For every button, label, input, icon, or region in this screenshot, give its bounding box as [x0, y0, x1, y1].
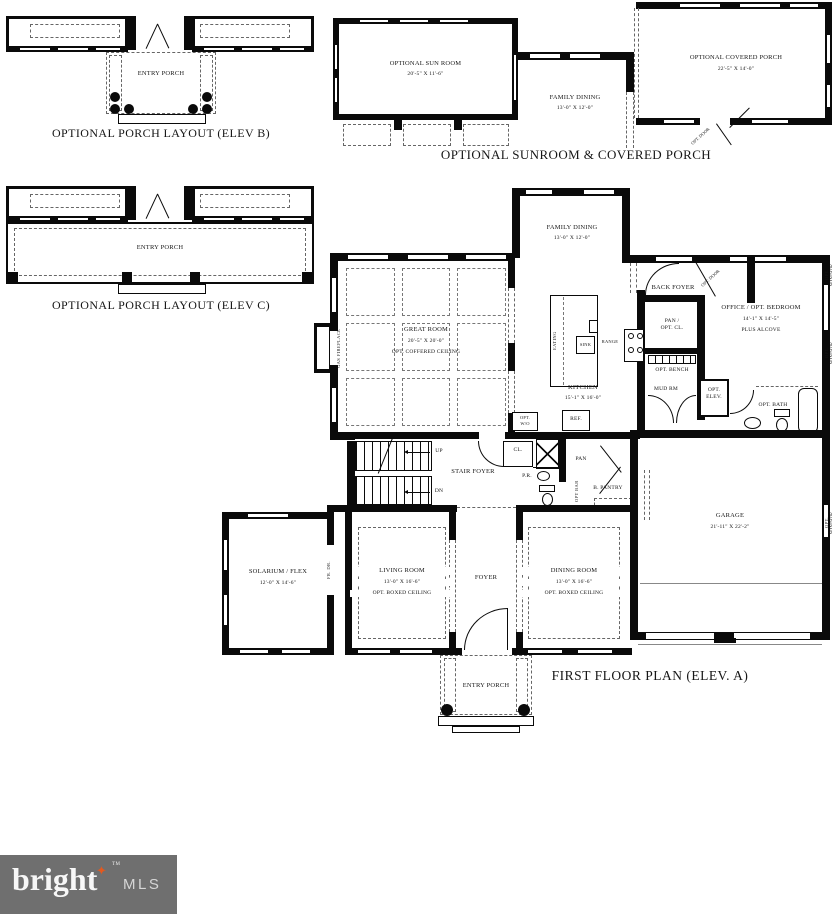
front-door-leaf — [507, 608, 508, 650]
window — [752, 119, 788, 124]
door-leaf — [157, 24, 169, 49]
up-arrow — [408, 452, 430, 453]
porch-step — [452, 726, 520, 733]
window — [248, 513, 288, 518]
porch-step — [118, 114, 206, 124]
window — [408, 254, 448, 260]
window — [282, 649, 310, 654]
office-name: OFFICE / OPT. BEDROOM — [698, 304, 824, 312]
wall — [622, 255, 830, 263]
opt-window-label: OPT. WINDOW — [824, 506, 831, 540]
sun-room-name: OPTIONAL SUN ROOM — [353, 60, 498, 68]
wall — [533, 467, 559, 468]
back-foyer-label: BACK FOYER — [633, 284, 713, 292]
window — [348, 254, 388, 260]
dashed-line — [200, 194, 290, 208]
main-caption: FIRST FLOOR PLAN (ELEV. A) — [535, 668, 765, 685]
porch-column — [202, 92, 212, 102]
wall — [345, 505, 352, 655]
window — [513, 55, 517, 100]
porch-column — [202, 104, 212, 114]
window — [358, 649, 390, 654]
wall — [630, 430, 638, 640]
dashed-line — [343, 124, 391, 146]
sink-label: SINK — [576, 342, 595, 348]
porch-column — [441, 704, 453, 716]
window — [656, 256, 692, 262]
wall — [516, 505, 632, 512]
dining-note: OPT. BOXED CEILING — [520, 590, 628, 597]
window — [730, 256, 786, 262]
linen-closet — [536, 439, 559, 469]
window — [58, 47, 88, 51]
porch-column — [190, 272, 200, 282]
solarium-name: SOLARIUM / FLEX — [228, 568, 328, 576]
porch-column — [518, 704, 530, 716]
window — [96, 47, 120, 51]
opt-door-label: OPT. DOOR — [690, 126, 711, 145]
toilet-tank — [539, 485, 555, 492]
sun-room-dims: 20'-5" X 11'-6" — [353, 71, 498, 78]
wall — [508, 253, 515, 288]
brightmls-logo: bright ✦ TM MLS — [0, 855, 177, 914]
window — [223, 595, 228, 625]
porch-column — [302, 272, 312, 282]
cl-label: CL. — [505, 447, 531, 454]
bench — [648, 355, 696, 364]
window — [20, 47, 50, 51]
window — [360, 19, 388, 23]
window — [440, 19, 468, 23]
dashed-line — [563, 297, 564, 385]
window — [400, 649, 432, 654]
b-pantry-label: B. PANTRY — [583, 485, 633, 492]
dashed-line — [449, 540, 456, 632]
solarium-dims: 12'-0" X 14'-6" — [228, 580, 328, 587]
window — [826, 85, 831, 107]
opt-bar-label: OPT BAR — [574, 476, 582, 506]
opt-bath-label: OPT. BATH — [750, 402, 796, 409]
wall — [505, 432, 640, 439]
window — [530, 53, 560, 59]
great-room-note: OPT. COFFERED CEILING — [350, 349, 502, 356]
window — [400, 19, 428, 23]
window — [740, 3, 780, 8]
window — [578, 649, 612, 654]
floor-plan-sheet: ENTRY PORCH OPTIONAL PORCH LAYOUT (ELEV … — [0, 0, 832, 914]
office-dims: 14'-1" X 14'-5" — [698, 316, 824, 323]
gas-fireplace-label: GAS FIREPLACE — [336, 326, 345, 370]
opt-window-label: OPT. WINDOW — [824, 258, 831, 292]
window — [570, 53, 600, 59]
kitchen-dims: 15'-1" X 16'-0" — [544, 395, 622, 402]
burner — [628, 333, 634, 339]
wall — [184, 16, 192, 50]
bath-sink — [744, 417, 761, 429]
logo-mls-text: MLS — [123, 876, 161, 893]
island-cabinet — [589, 320, 598, 333]
dashed-line — [200, 24, 290, 38]
family-dining-name: FAMILY DINING — [518, 224, 626, 232]
door-leaf — [146, 194, 158, 219]
pr-label: P.R. — [516, 473, 538, 480]
window — [204, 47, 234, 51]
range-label: RANGE — [597, 339, 623, 345]
entry-porch-label: ENTRY PORCH — [440, 682, 532, 690]
entry-porch-label: ENTRY PORCH — [106, 70, 216, 78]
wall — [626, 52, 634, 92]
window — [242, 47, 272, 51]
wall — [338, 432, 479, 439]
porch-column — [110, 104, 120, 114]
window — [334, 45, 338, 69]
dashed-line — [508, 371, 515, 413]
porch-c-caption: OPTIONAL PORCH LAYOUT (ELEV C) — [6, 298, 316, 313]
wall — [747, 255, 755, 303]
dn-label: DN — [430, 488, 448, 495]
dashed-line — [508, 288, 515, 343]
wall — [643, 295, 705, 302]
logo-brand-text: bright — [12, 861, 97, 898]
wall — [454, 120, 462, 130]
closet — [503, 441, 533, 467]
wall — [222, 648, 334, 655]
dining-name: DINING ROOM — [522, 567, 626, 575]
wall — [516, 632, 523, 648]
window — [58, 217, 88, 221]
covered-porch-name: OPTIONAL COVERED PORCH — [666, 54, 806, 62]
window — [280, 47, 304, 51]
window — [790, 3, 818, 8]
up-label: UP — [430, 448, 448, 455]
window — [528, 649, 562, 654]
door-arc — [478, 441, 504, 467]
office-note: PLUS ALCOVE — [698, 327, 824, 334]
living-note: OPT. BOXED CEILING — [350, 590, 454, 597]
family-dining-dims: 13'-0" X 12'-0" — [520, 105, 630, 112]
toilet-tank — [774, 409, 790, 417]
window — [242, 217, 272, 221]
logo-star-icon: ✦ — [96, 863, 107, 879]
window — [664, 119, 694, 124]
front-door-arc — [464, 608, 508, 650]
garage-apron-line — [638, 644, 822, 645]
stair-foyer-label: STAIR FOYER — [438, 468, 508, 476]
dashed-line — [634, 8, 639, 118]
wall — [508, 343, 515, 371]
dashed-line — [463, 124, 509, 146]
wall — [559, 437, 566, 482]
window — [334, 78, 338, 102]
window — [223, 540, 228, 570]
window — [96, 217, 120, 221]
dashed-line — [200, 55, 213, 111]
covered-porch-dims: 22'-5" X 14'-0" — [666, 66, 806, 73]
porch-column — [124, 104, 134, 114]
garage-door-opening — [734, 633, 810, 639]
door-leaf — [146, 24, 158, 49]
window — [280, 217, 304, 221]
eating-label: EATING — [552, 322, 561, 360]
window — [20, 217, 50, 221]
window — [826, 35, 831, 63]
living-name: LIVING ROOM — [352, 567, 452, 575]
porch-column — [110, 92, 120, 102]
wall — [128, 186, 136, 220]
porch-column — [122, 272, 132, 282]
dn-arrow — [408, 492, 430, 493]
wall — [637, 290, 645, 437]
window — [204, 217, 234, 221]
door-leaf — [157, 194, 169, 219]
up-arrowhead — [404, 450, 408, 454]
entry-porch-label: ENTRY PORCH — [6, 244, 314, 252]
wall — [394, 120, 402, 130]
wall — [184, 186, 192, 220]
opt-wall-oven-label: OPT. W/O — [512, 415, 538, 426]
garage-bay-line — [640, 583, 822, 584]
dn-arrowhead — [404, 490, 408, 494]
garage-dims: 21'-11" X 22'-2" — [660, 524, 800, 531]
opt-elev-label: OPT. ELEV. — [700, 387, 728, 401]
dashed-line — [644, 470, 650, 520]
wall — [516, 512, 523, 540]
burner — [637, 347, 643, 353]
window — [240, 649, 268, 654]
wall — [449, 632, 456, 648]
kitchen-name: KITCHEN — [548, 384, 618, 392]
wall — [347, 441, 355, 512]
window — [526, 189, 552, 195]
stair-rail — [355, 470, 432, 477]
dashed-line — [516, 540, 523, 632]
coffered-ceiling-grid — [346, 268, 506, 426]
pan-label: PAN — [566, 456, 596, 463]
bathtub — [798, 388, 818, 433]
logo-trademark: TM — [112, 862, 121, 867]
fireplace-box — [317, 327, 329, 369]
window — [680, 3, 720, 8]
wall — [128, 16, 136, 50]
porch-step — [118, 284, 206, 294]
door-arc — [676, 395, 696, 423]
ref-label: REF. — [562, 416, 590, 423]
wall — [637, 430, 830, 438]
garage-door-opening — [646, 633, 714, 639]
wall — [643, 348, 705, 354]
mud-rm-label: MUD RM — [642, 386, 690, 393]
opt-bench-label: OPT. BENCH — [644, 367, 700, 374]
porch-b-caption: OPTIONAL PORCH LAYOUT (ELEV B) — [6, 126, 316, 141]
window — [466, 254, 506, 260]
family-dining-dims: 13'-0" X 12'-0" — [518, 235, 626, 242]
great-room-name: GREAT ROOM — [350, 326, 502, 334]
dining-dims: 13'-0" X 16'-6" — [522, 579, 626, 586]
dashed-line — [403, 124, 451, 146]
dashed-line — [30, 194, 120, 208]
sun-room-outline — [333, 18, 518, 120]
wall — [449, 512, 456, 540]
burner — [637, 333, 643, 339]
great-room-dims: 20'-5" X 20'-0" — [350, 338, 502, 345]
garage-pier — [714, 638, 736, 643]
dashed-line — [30, 24, 120, 38]
living-dims: 13'-0" X 16'-6" — [352, 579, 452, 586]
window — [331, 388, 337, 422]
wall — [512, 188, 520, 258]
dashed-opening — [457, 507, 516, 510]
porch-column — [8, 272, 18, 282]
burner — [628, 347, 634, 353]
porch-column — [188, 104, 198, 114]
family-dining-name: FAMILY DINING — [520, 94, 630, 102]
porch-step — [438, 716, 534, 726]
pan-opt-cl-label: PAN / OPT. CL. — [648, 318, 696, 332]
wall — [345, 505, 457, 512]
pr-sink — [537, 471, 550, 481]
dashed-line — [626, 92, 634, 148]
door-arc — [648, 395, 674, 423]
garage-name: GARAGE — [660, 512, 800, 520]
dashed-line — [109, 55, 122, 111]
sunroom-caption: OPTIONAL SUNROOM & COVERED PORCH — [420, 147, 732, 163]
wall — [622, 188, 630, 258]
window — [331, 278, 337, 312]
foyer-label: FOYER — [458, 574, 514, 582]
opt-window-label: OPT. WINDOW — [824, 336, 831, 370]
window — [584, 189, 614, 195]
